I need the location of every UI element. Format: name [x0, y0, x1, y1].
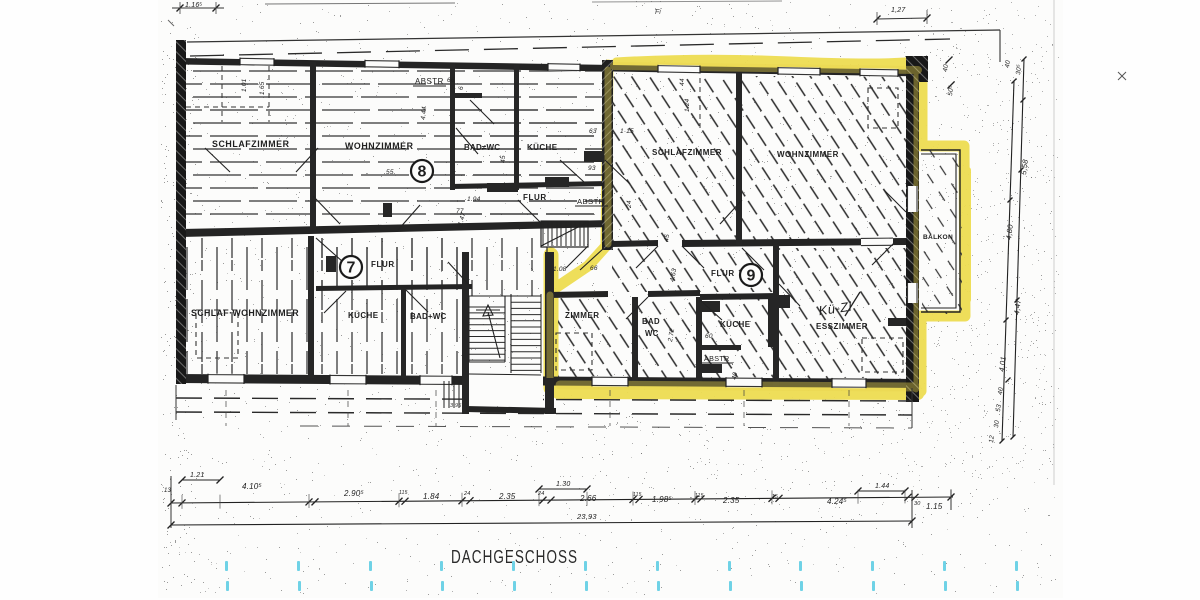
svg-text:BAD: BAD	[642, 317, 660, 326]
svg-text:24: 24	[626, 200, 633, 209]
svg-text:66: 66	[590, 265, 598, 272]
svg-text:SCHLAFZIMMER: SCHLAFZIMMER	[212, 139, 290, 149]
svg-text:ABSTR: ABSTR	[577, 197, 605, 206]
svg-text:53: 53	[995, 404, 1003, 413]
svg-text:115: 115	[399, 490, 408, 496]
svg-text:2.66: 2.66	[579, 494, 597, 503]
svg-text:3,95: 3,95	[450, 403, 462, 409]
svg-text:1.15: 1.15	[926, 502, 943, 511]
svg-text:ZIMMER: ZIMMER	[565, 311, 600, 320]
svg-text:4.44: 4.44	[420, 106, 428, 120]
svg-text:1.84: 1.84	[423, 492, 440, 501]
svg-text:7: 7	[347, 260, 356, 277]
svg-text:1.08: 1.08	[553, 266, 567, 273]
svg-text:40: 40	[997, 387, 1005, 396]
svg-text:Fi: Fi	[655, 9, 661, 16]
svg-text:115: 115	[695, 493, 704, 499]
svg-text:60: 60	[705, 333, 713, 340]
svg-text:ABSTR: ABSTR	[415, 77, 444, 86]
svg-text:30: 30	[914, 501, 921, 507]
svg-text:ESSZIMMER: ESSZIMMER	[816, 322, 868, 331]
svg-text:6: 6	[458, 86, 465, 90]
svg-text:12: 12	[988, 435, 996, 444]
svg-text:BALKON: BALKON	[923, 234, 953, 241]
svg-text:1.65: 1.65	[259, 81, 266, 95]
svg-text:24: 24	[537, 491, 545, 497]
svg-text:1.94: 1.94	[467, 196, 481, 203]
svg-text:9: 9	[747, 268, 756, 285]
svg-text:30⁵: 30⁵	[1015, 64, 1023, 75]
svg-text:2.35: 2.35	[498, 492, 516, 501]
svg-text:FLUR: FLUR	[711, 269, 735, 278]
svg-text:45: 45	[500, 155, 507, 163]
svg-text:KÜCHE: KÜCHE	[348, 311, 379, 320]
svg-text:4.24⁵: 4.24⁵	[827, 497, 847, 506]
svg-text:8: 8	[418, 164, 427, 181]
svg-text:15: 15	[772, 494, 778, 500]
svg-text:30: 30	[993, 420, 1001, 429]
svg-text:BAD≠WC: BAD≠WC	[464, 143, 500, 152]
svg-text:1.98⁵: 1.98⁵	[652, 495, 672, 504]
svg-text:1.44: 1.44	[875, 483, 889, 490]
svg-text:1.30: 1.30	[556, 481, 570, 488]
svg-text:SCHLAF·WOHNZIMMER: SCHLAF·WOHNZIMMER	[191, 308, 299, 318]
svg-text:40: 40	[942, 64, 950, 73]
svg-text:BAD+WC: BAD+WC	[410, 312, 447, 321]
svg-text:4,01: 4,01	[997, 356, 1008, 372]
svg-text:ABSTR: ABSTR	[704, 354, 729, 363]
svg-text:FLUR: FLUR	[371, 260, 395, 269]
svg-text:.55.: .55.	[384, 169, 396, 176]
svg-text:66: 66	[447, 77, 455, 84]
svg-text:13: 13	[164, 488, 172, 494]
svg-text:1.24: 1.24	[684, 98, 691, 112]
svg-text:1·15: 1·15	[620, 128, 634, 135]
svg-text:WC: WC	[645, 329, 659, 338]
svg-text:40: 40	[731, 371, 739, 380]
svg-text:1,27: 1,27	[891, 7, 906, 14]
svg-text:63: 63	[589, 128, 597, 135]
svg-text:1.21: 1.21	[190, 472, 204, 479]
svg-text:2.90⁵: 2.90⁵	[343, 489, 364, 498]
svg-text:WOHNZIMMER: WOHNZIMMER	[345, 141, 414, 151]
svg-text:115: 115	[633, 492, 642, 498]
svg-text:WOHNZIMMER: WOHNZIMMER	[777, 150, 839, 159]
svg-text:2.35: 2.35	[722, 496, 740, 505]
svg-text:24: 24	[463, 491, 471, 497]
svg-text:KÜCHE: KÜCHE	[720, 320, 751, 329]
svg-text:93: 93	[588, 165, 596, 172]
svg-text:4.10⁵: 4.10⁵	[242, 482, 262, 491]
svg-text:44: 44	[679, 78, 686, 86]
svg-text:45: 45	[663, 233, 671, 242]
svg-text:23,93: 23,93	[576, 512, 597, 521]
svg-text:50⁵: 50⁵	[947, 85, 955, 96]
svg-text:FLUR: FLUR	[523, 193, 547, 202]
svg-text:40: 40	[1004, 60, 1012, 69]
svg-text:SCHLAFZIMMER: SCHLAFZIMMER	[652, 148, 722, 157]
svg-text:KÜCHE: KÜCHE	[527, 143, 558, 152]
svg-text:1.01: 1.01	[241, 78, 248, 92]
